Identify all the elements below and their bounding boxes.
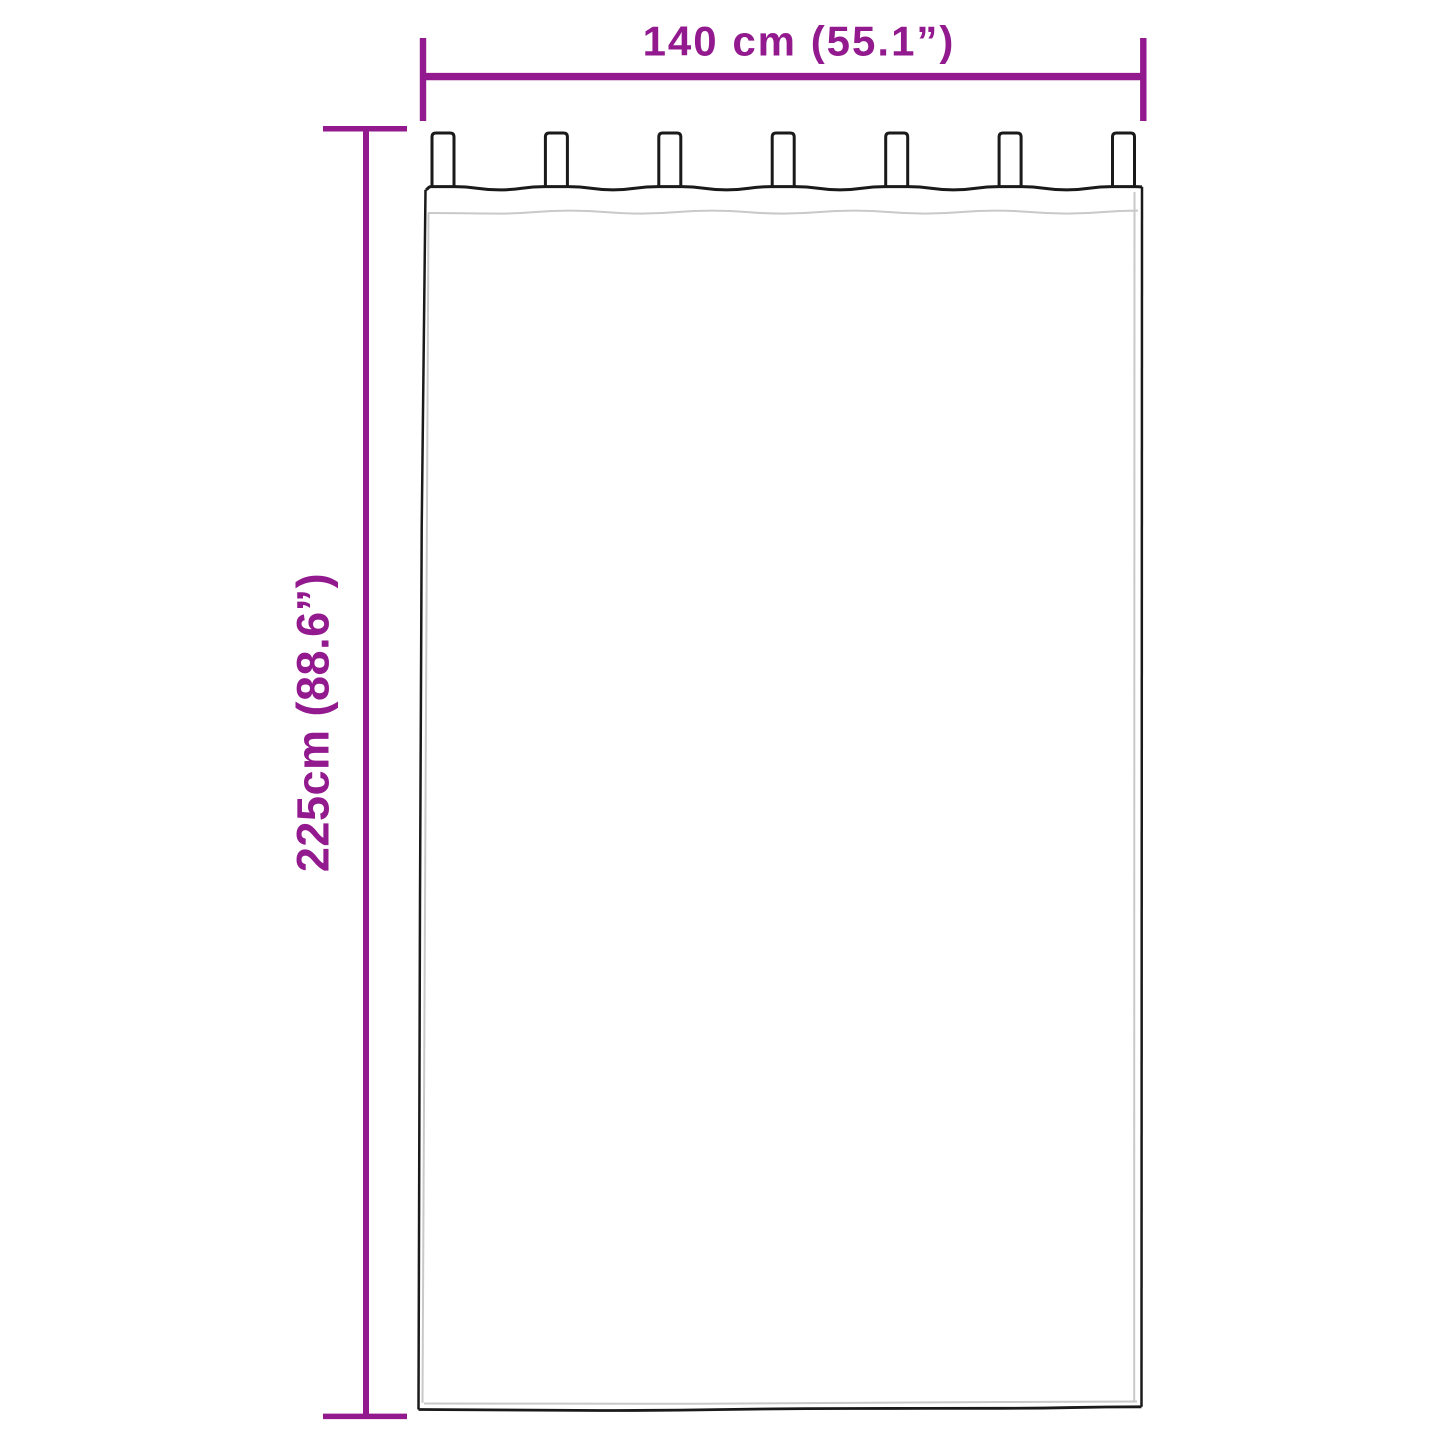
svg-text:225cm (88.6”): 225cm (88.6”) <box>288 573 339 872</box>
svg-text:140 cm (55.1”): 140 cm (55.1”) <box>643 18 956 65</box>
